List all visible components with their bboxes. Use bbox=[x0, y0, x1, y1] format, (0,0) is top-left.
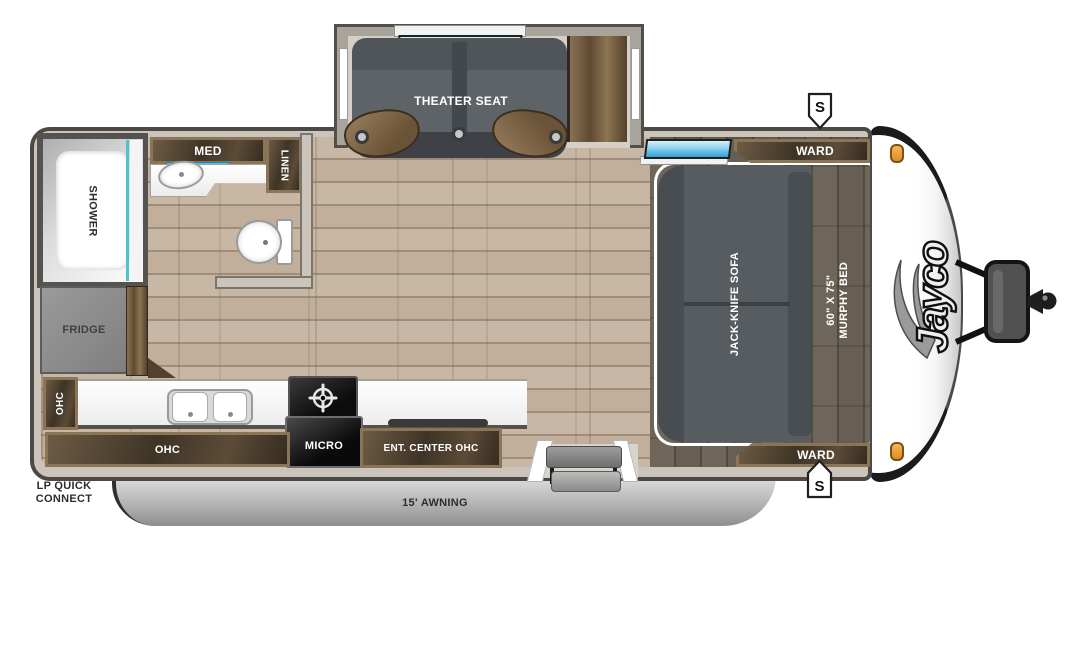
ohc-lower-label: OHC bbox=[155, 444, 180, 456]
fridge-label: FRIDGE bbox=[62, 324, 105, 336]
grommet bbox=[549, 130, 563, 144]
linen-cabinet: LINEN bbox=[266, 137, 302, 193]
med-label: MED bbox=[194, 144, 222, 158]
lp-quick-connect-label-line2: CONNECT bbox=[22, 493, 106, 506]
grommet bbox=[355, 130, 369, 144]
floorplan-canvas: 15' AWNING THEATER SEAT SHOWER MED bbox=[0, 0, 1065, 671]
ward-top-cabinet: WARD bbox=[734, 139, 870, 163]
marker-light-top bbox=[890, 144, 904, 163]
micro-label: MICRO bbox=[305, 440, 343, 452]
ohc-side-cabinet: OHC bbox=[43, 377, 78, 430]
fridge-side-panel bbox=[126, 286, 148, 376]
med-cabinet: MED bbox=[150, 137, 266, 164]
awning-label: 15' AWNING bbox=[402, 497, 468, 509]
ohc-side-label: OHC bbox=[55, 392, 66, 415]
hitch-coupler bbox=[1028, 289, 1043, 314]
propane-cover bbox=[986, 262, 1028, 341]
lp-quick-connect-label-line1: LP QUICK bbox=[22, 480, 106, 493]
toilet-bowl bbox=[236, 220, 282, 264]
ent-center-label: ENT. CENTER OHC bbox=[383, 443, 478, 454]
kitchen-sink-bowl-right bbox=[213, 392, 247, 422]
front-cap bbox=[870, 126, 963, 482]
stabilizer-top-label: S bbox=[815, 99, 825, 116]
sink-drain bbox=[188, 412, 193, 417]
linen-label: LINEN bbox=[279, 149, 290, 181]
bedroom-window bbox=[644, 139, 732, 159]
grommet bbox=[452, 127, 466, 141]
sofa-label: JACK-KNIFE SOFA bbox=[729, 252, 741, 356]
ohc-lower-cabinet: OHC bbox=[45, 432, 290, 467]
fridge: FRIDGE bbox=[40, 286, 128, 374]
murphy-size-label: 60" X 75" bbox=[825, 262, 838, 339]
sink-drain bbox=[228, 412, 233, 417]
tv-strip bbox=[388, 419, 488, 427]
cooktop bbox=[288, 376, 358, 419]
ward-bottom-cabinet: WARD bbox=[736, 443, 870, 467]
marker-light-bottom bbox=[890, 442, 904, 461]
ward-top-label: WARD bbox=[770, 144, 834, 158]
stabilizer-badge-top: S bbox=[809, 94, 831, 128]
theater-seat-label: THEATER SEAT bbox=[414, 94, 508, 108]
entry-step-lower bbox=[551, 471, 621, 492]
ward-bottom-label: WARD bbox=[771, 448, 835, 462]
toilet-flush-button bbox=[263, 240, 268, 245]
bath-sink-drain bbox=[179, 172, 184, 177]
kitchen-sink-bowl-left bbox=[172, 392, 208, 422]
bathroom-wall-bottom bbox=[215, 276, 313, 289]
hitch-ball bbox=[1040, 293, 1057, 310]
ent-center-cabinet: ENT. CENTER OHC bbox=[360, 428, 502, 468]
slideout-cabinet bbox=[567, 36, 627, 142]
shower-label: SHOWER bbox=[87, 185, 99, 236]
entry-step-upper bbox=[546, 446, 622, 468]
slideout-left-window bbox=[339, 48, 348, 120]
bathroom-wall-right bbox=[300, 133, 313, 289]
slideout-right-window bbox=[631, 48, 640, 120]
murphy-bed-label: MURPHY BED bbox=[838, 262, 851, 339]
theater-seat-console bbox=[452, 42, 467, 140]
